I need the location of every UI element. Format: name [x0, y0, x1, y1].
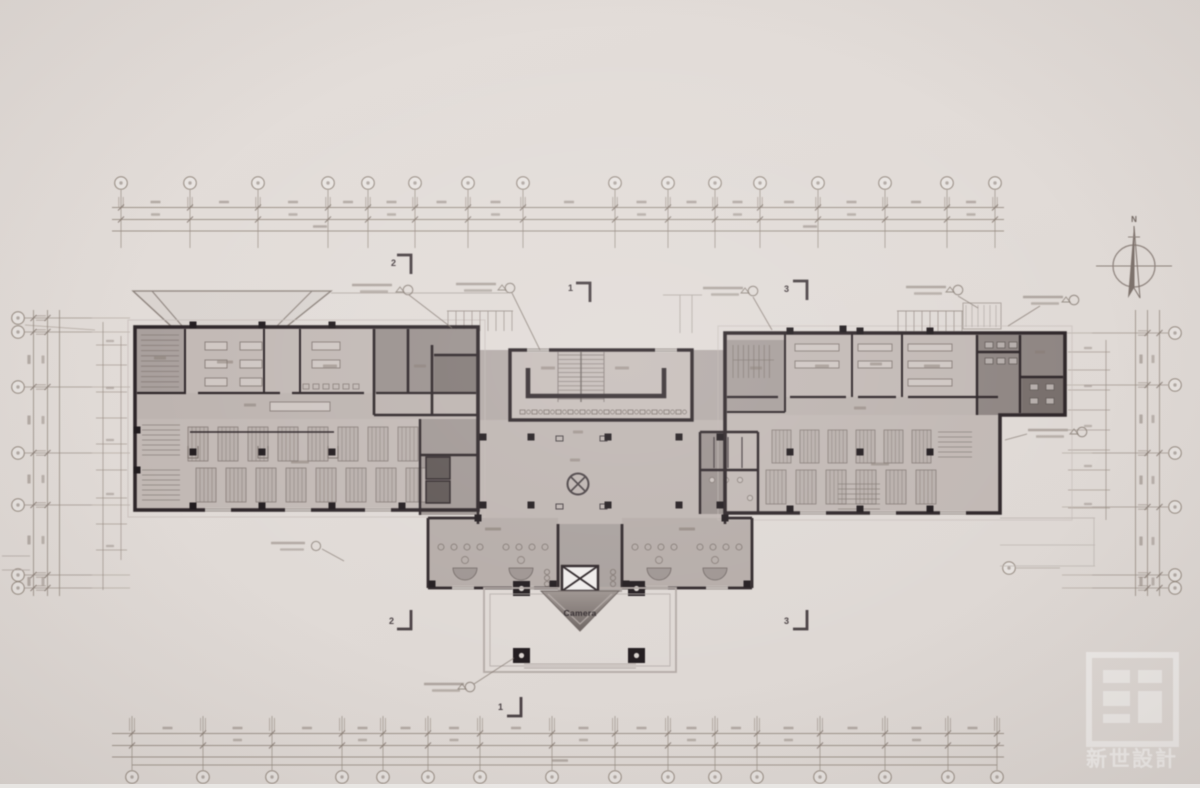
column [605, 502, 612, 509]
grid-bubble-digit [16, 573, 19, 576]
elevation-mark [1077, 427, 1087, 437]
plan-graphic [772, 430, 791, 463]
grid-bubble [812, 177, 825, 190]
text-smudge [711, 293, 739, 295]
shelf-unit [766, 470, 786, 504]
plan-graphic [256, 468, 276, 502]
grid-bubble-digit [883, 775, 886, 778]
grid-bubble-digit [1173, 331, 1176, 334]
plan-graphic [286, 468, 306, 502]
grid-bubble-digit [1173, 573, 1176, 576]
grid-bubble-digit [16, 451, 19, 454]
fixture [1046, 398, 1054, 404]
text-smudge [637, 201, 647, 204]
left-dimension-chain [12, 310, 130, 596]
column [190, 449, 197, 456]
grid-bubble [942, 771, 955, 784]
grid-bubble [409, 177, 422, 190]
grid-bubble [252, 177, 265, 190]
grid-bubble [12, 569, 25, 582]
text-smudge [564, 201, 574, 204]
compass-north-label: N [1131, 215, 1137, 224]
table [240, 378, 262, 386]
grid-bubble [115, 177, 128, 190]
text-smudge [570, 459, 580, 462]
grid-bubble [1169, 327, 1182, 340]
text-smudge [106, 439, 114, 441]
text-smudge [280, 548, 304, 550]
text-smudge [233, 727, 243, 730]
column [722, 515, 729, 522]
grid-bubble [12, 326, 25, 339]
elevation-mark [953, 285, 963, 295]
column [927, 449, 934, 456]
fixture [709, 477, 714, 482]
text-smudge [687, 727, 697, 730]
column [605, 434, 612, 441]
drawing-line [753, 297, 772, 330]
text-smudge [217, 361, 233, 364]
plan-graphic [884, 430, 903, 463]
text-smudge [1139, 476, 1142, 485]
section-marker-1-top: 1 [568, 283, 573, 293]
grid-bubble [609, 771, 622, 784]
fixture [1030, 384, 1038, 390]
elevation-mark [311, 541, 320, 550]
grid-bubble-digit [16, 385, 19, 388]
text-smudge [1152, 537, 1155, 545]
column [475, 515, 482, 522]
column [550, 581, 557, 588]
grid-bubble-digit [426, 775, 429, 778]
floor-plan-sheet: Camera 2 2 1 1 3 3 N 新世設計 [0, 0, 1200, 788]
text-smudge [360, 290, 388, 292]
text-smudge [302, 727, 312, 730]
text-smudge [323, 365, 337, 368]
drawing-line [1005, 434, 1027, 440]
plan-graphic [886, 470, 906, 504]
grid-bubble-digit [713, 181, 716, 184]
fixture [997, 358, 1005, 364]
shelf-unit [886, 470, 906, 504]
shelf-unit [884, 430, 903, 463]
plan-graphic [316, 468, 336, 502]
text-smudge [1084, 503, 1092, 505]
grid-bubble [12, 499, 25, 512]
section-marker-2-top: 2 [391, 258, 396, 268]
bottom-edge-strip [0, 784, 1200, 788]
text-smudge [924, 365, 940, 368]
text-smudge [464, 289, 492, 291]
shelf-unit [346, 468, 366, 502]
grid-bubble [751, 771, 764, 784]
north-compass: N [1096, 215, 1172, 298]
grid-bubble [662, 177, 675, 190]
text-smudge [871, 463, 889, 466]
grid-bubble-digit [758, 181, 761, 184]
text-smudge [449, 727, 459, 730]
text-smudge [615, 367, 629, 370]
grid-bubble [709, 177, 722, 190]
text-smudge [703, 287, 743, 290]
column [399, 503, 406, 510]
grid-bubble-digit [16, 316, 19, 319]
fixture [985, 342, 993, 348]
text-smudge [42, 536, 45, 544]
grid-bubble-digit [818, 775, 821, 778]
text-smudge [352, 284, 392, 287]
text-smudge [1084, 347, 1092, 349]
fixture [1009, 342, 1017, 348]
text-smudge [803, 225, 817, 228]
watermark-logo: 新世設計 [1086, 655, 1178, 771]
text-smudge [579, 739, 588, 741]
text-smudge [967, 213, 976, 215]
grid-bubble-digit [613, 775, 616, 778]
text-smudge [750, 367, 762, 370]
text-smudge [968, 727, 978, 730]
column [190, 503, 197, 510]
column [134, 467, 141, 474]
grid-bubble [266, 771, 279, 784]
grid-bubble-digit [466, 181, 469, 184]
text-smudge [1152, 476, 1155, 484]
text-smudge [815, 365, 829, 368]
plan-graphic [406, 468, 426, 502]
grid-bubble [609, 177, 622, 190]
text-smudge [485, 528, 501, 531]
column [840, 326, 847, 333]
column [717, 502, 724, 509]
grid-bubble [879, 771, 892, 784]
column [744, 581, 751, 588]
column [190, 322, 197, 329]
drawing-line [409, 295, 452, 328]
text-smudge [870, 363, 882, 366]
column [857, 328, 864, 335]
grid-bubble-digit [713, 775, 716, 778]
plan-graphic [368, 427, 388, 461]
entrance-label: Camera [564, 608, 597, 618]
column [787, 506, 794, 513]
text-smudge [1139, 537, 1142, 546]
text-smudge [42, 475, 45, 483]
grid-bubble-digit [16, 586, 19, 589]
text-smudge [106, 493, 114, 495]
grid-bubble-digit [550, 775, 553, 778]
grid-bubble-digit [119, 181, 122, 184]
text-smudge [552, 759, 568, 762]
text-smudge [784, 201, 794, 204]
text-smudge [911, 201, 921, 204]
table [205, 378, 227, 386]
grid-bubble-digit [946, 775, 949, 778]
shelf-unit [226, 468, 246, 502]
floor-plan-drawing: Camera 2 2 1 1 3 3 N 新世設計 [0, 0, 1200, 788]
grid-bubble-digit [1173, 586, 1176, 589]
text-smudge [219, 201, 229, 204]
watermark-logo-square [1089, 655, 1176, 744]
grid-bubble-digit [188, 181, 191, 184]
text-smudge [679, 528, 695, 531]
column [857, 506, 864, 513]
text-smudge [271, 542, 305, 545]
text-smudge [288, 201, 298, 204]
text-smudge [733, 201, 743, 204]
text-smudge [966, 201, 976, 204]
table [908, 344, 952, 351]
text-smudge [541, 367, 555, 370]
shelf-unit [316, 468, 336, 502]
column [259, 322, 266, 329]
column [787, 328, 794, 335]
plan-graphic [398, 427, 418, 461]
text-smudge [731, 727, 741, 730]
text-smudge [343, 201, 353, 204]
grid-bubble [546, 771, 559, 784]
fixture [1046, 384, 1054, 390]
column [857, 449, 864, 456]
fixture [747, 495, 752, 500]
grid-bubble [879, 177, 892, 190]
grid-bubble-digit [883, 181, 886, 184]
text-smudge [912, 727, 922, 730]
grid-bubble-digit [993, 181, 996, 184]
grid-bubble-digit [1173, 505, 1176, 508]
text-smudge [847, 213, 856, 215]
text-smudge [511, 727, 521, 730]
grid-bubble [336, 771, 349, 784]
porch-column-dot [634, 653, 639, 658]
shelf-unit [368, 427, 388, 461]
column [717, 434, 724, 441]
text-smudge [1152, 415, 1155, 423]
section-marker-3-top: 3 [784, 284, 789, 294]
table [858, 344, 892, 351]
column [259, 503, 266, 510]
fixture [737, 477, 742, 482]
shelf-unit [406, 468, 426, 502]
text-smudge [437, 201, 447, 204]
grid-bubble [991, 771, 1004, 784]
text-smudge [579, 727, 589, 730]
section-marker-1-bottom: 1 [498, 702, 503, 712]
plan-graphic [376, 468, 396, 502]
column [429, 581, 436, 588]
elevation-mark [748, 286, 758, 296]
text-smudge [1139, 577, 1142, 586]
shelf-unit [796, 470, 816, 504]
text-smudge [491, 201, 501, 204]
text-smudge [1023, 296, 1063, 299]
text-smudge [1036, 435, 1064, 437]
text-smudge [854, 407, 866, 410]
text-smudge [450, 739, 459, 741]
column [480, 502, 487, 509]
text-smudge [847, 201, 857, 204]
grid-bubble-digit [16, 503, 19, 506]
grid-bubble [1169, 447, 1182, 460]
grid-bubble [184, 177, 197, 190]
shelf-unit [376, 468, 396, 502]
column [134, 427, 141, 434]
text-smudge [106, 340, 114, 342]
grid-bubble-digit [1173, 451, 1176, 454]
grid-bubble [422, 771, 435, 784]
grid-bubble-digit [413, 181, 416, 184]
text-smudge [414, 365, 426, 368]
text-smudge [1139, 355, 1142, 364]
plan-graphic [766, 470, 786, 504]
grid-bubble [126, 771, 139, 784]
plan-graphic [196, 468, 216, 502]
elevation-mark [465, 682, 475, 692]
text-smudge [733, 213, 742, 215]
grid-bubble [322, 177, 335, 190]
grid-bubble [1169, 501, 1182, 514]
column [528, 502, 535, 509]
grid-bubble [12, 312, 25, 325]
text-smudge [27, 577, 30, 586]
column [259, 449, 266, 456]
fixture [997, 342, 1005, 348]
text-smudge [313, 225, 327, 228]
text-smudge [1152, 578, 1155, 586]
plan-graphic [856, 430, 875, 463]
text-smudge [106, 545, 114, 547]
shelf-unit [286, 468, 306, 502]
text-smudge [387, 213, 396, 215]
porch-column-dot [519, 653, 524, 658]
text-smudge [906, 286, 946, 289]
column [787, 449, 794, 456]
text-smudge [358, 739, 367, 741]
text-smudge [1035, 351, 1045, 354]
grid-bubble-digit [340, 775, 343, 778]
grid-bubble [941, 177, 954, 190]
grid-bubble [814, 771, 827, 784]
shelf-unit [856, 430, 875, 463]
text-smudge [432, 689, 460, 691]
text-smudge [848, 727, 858, 730]
shelf-unit [196, 468, 216, 502]
text-smudge [687, 739, 696, 741]
text-smudge [42, 578, 45, 586]
grid-bubble [377, 771, 390, 784]
fixture [1030, 398, 1038, 404]
plan-graphic [796, 470, 816, 504]
plan-graphic [916, 470, 936, 504]
text-smudge [289, 213, 298, 215]
text-smudge [1028, 429, 1068, 432]
column [676, 502, 683, 509]
grid-bubble [517, 177, 530, 190]
table [908, 379, 952, 386]
elevation-mark [505, 283, 515, 293]
grid-bubble-digit [816, 181, 819, 184]
elevation-mark [1069, 295, 1079, 305]
text-smudge [1031, 302, 1059, 304]
grid-bubble [12, 582, 25, 595]
column [528, 434, 535, 441]
text-smudge [42, 416, 45, 424]
plan-graphic [346, 468, 366, 502]
text-smudge [456, 283, 496, 286]
grid-bubble [12, 381, 25, 394]
text-smudge [244, 404, 256, 407]
text-smudge [154, 357, 166, 360]
drawing-line [958, 296, 978, 308]
table [312, 342, 340, 350]
grid-bubble [754, 177, 767, 190]
drawing-line [322, 549, 344, 561]
text-smudge [1152, 355, 1155, 363]
column [927, 506, 934, 513]
fixture [1009, 358, 1017, 364]
text-smudge [1084, 385, 1092, 387]
shelf-unit [772, 430, 791, 463]
grid-bubble-digit [1173, 383, 1176, 386]
top-dimension-chain [112, 177, 1004, 248]
shelf-unit [338, 427, 358, 461]
column [329, 322, 336, 329]
entry-canopy-outline [133, 291, 331, 327]
grid-bubble [1003, 562, 1016, 575]
grid-bubble-digit [201, 775, 204, 778]
column [329, 449, 336, 456]
text-smudge [491, 213, 500, 215]
table [240, 360, 262, 368]
grid-bubble-digit [16, 330, 19, 333]
drawing-line [512, 293, 540, 350]
text-smudge [233, 739, 242, 741]
text-smudge [637, 727, 647, 730]
grid-bubble [709, 771, 722, 784]
grid-bubble-digit [1007, 566, 1010, 569]
shelf-unit [256, 468, 276, 502]
section-marker-3-bottom: 3 [784, 616, 789, 626]
grid-bubble [1169, 379, 1182, 392]
grid-bubble-digit [666, 775, 669, 778]
column [329, 503, 336, 510]
column [676, 434, 683, 441]
text-smudge [1139, 415, 1142, 424]
plan-graphic [828, 430, 847, 463]
text-smudge [27, 475, 30, 484]
text-smudge [27, 536, 30, 545]
table [240, 342, 262, 350]
drawing-line [25, 325, 95, 330]
text-smudge [387, 201, 397, 204]
shelf-unit [800, 430, 819, 463]
shelf-unit [828, 430, 847, 463]
bottom-dimension-chain [112, 716, 1004, 783]
text-smudge [784, 727, 794, 730]
column [480, 434, 487, 441]
text-smudge [358, 727, 368, 730]
section-marker-2-bottom: 2 [389, 616, 394, 626]
text-smudge [914, 292, 942, 294]
grid-bubble [1169, 569, 1182, 582]
shelf-unit [916, 470, 936, 504]
grid-bubble [197, 771, 210, 784]
text-smudge [687, 201, 697, 204]
grid-bubble-digit [666, 181, 669, 184]
grid-bubble [462, 177, 475, 190]
text-smudge [573, 431, 583, 434]
grid-bubble [989, 177, 1002, 190]
text-smudge [163, 727, 173, 730]
